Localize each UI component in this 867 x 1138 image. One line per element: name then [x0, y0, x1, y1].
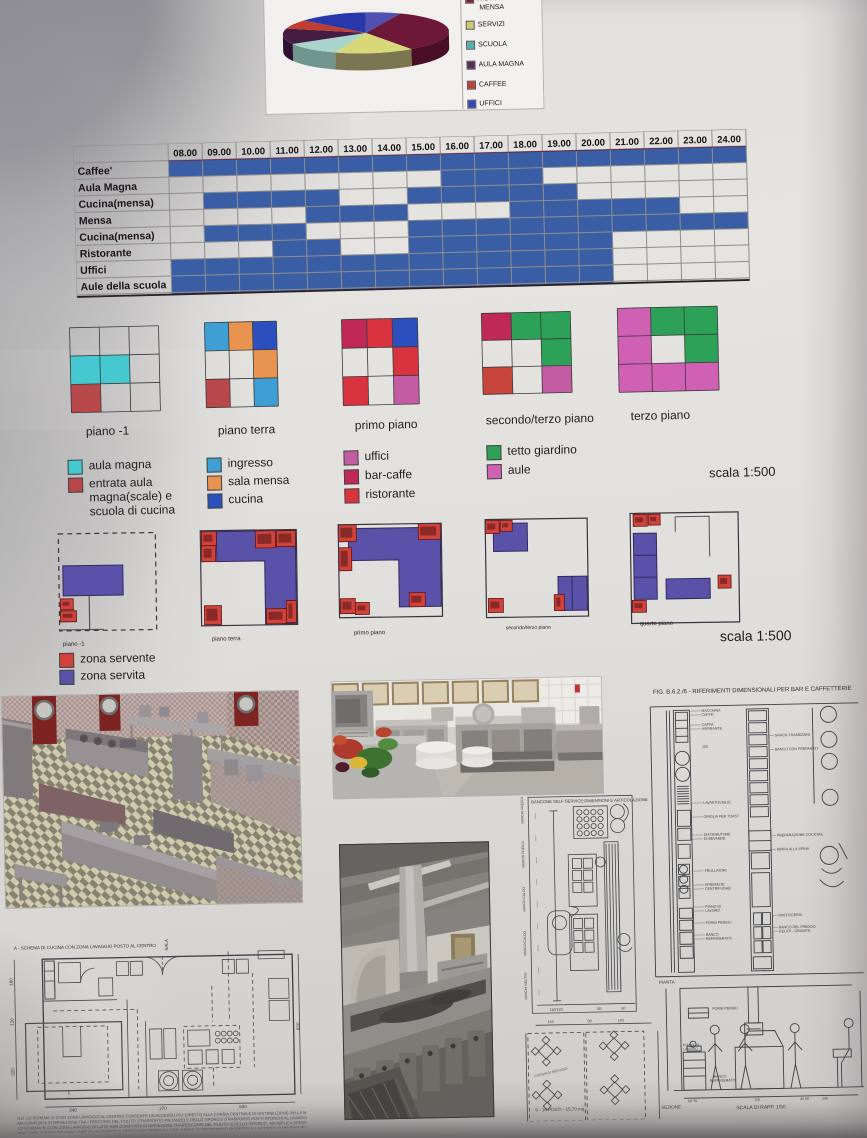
- svg-text:ASPIRANTE: ASPIRANTE: [702, 726, 723, 730]
- svg-text:80: 80: [587, 1019, 591, 1023]
- svg-text:320: 320: [10, 1068, 15, 1076]
- svg-text:143: 143: [548, 1020, 554, 1024]
- svg-text:BANCO CON PREPARATI: BANCO CON PREPARATI: [775, 747, 818, 752]
- svg-text:110/120: 110/120: [549, 1008, 563, 1012]
- svg-text:50: 50: [621, 1006, 625, 1010]
- svg-text:CENTRIFUGHE: CENTRIFUGHE: [705, 886, 732, 891]
- svg-text:105: 105: [702, 745, 708, 749]
- svg-text:PASTICCERIA: PASTICCERIA: [778, 913, 802, 917]
- svg-text:LAVORO: LAVORO: [705, 909, 720, 913]
- svg-text:SNACK-TRAMEZZINI: SNACK-TRAMEZZINI: [775, 733, 810, 738]
- svg-text:110: 110: [754, 1098, 760, 1102]
- svg-text:60 70: 60 70: [688, 1099, 697, 1103]
- svg-text:GRIGLIA PER TOAST: GRIGLIA PER TOAST: [703, 814, 739, 819]
- svg-text:CORSIA DI SERVIZIO: CORSIA DI SERVIZIO: [534, 1067, 568, 1079]
- svg-text:BANCHI FREDDI: BANCHI FREDDI: [521, 841, 526, 868]
- svg-text:GELATI - GRANITE: GELATI - GRANITE: [779, 929, 811, 934]
- svg-text:SEZIONE: SEZIONE: [661, 1104, 681, 1109]
- svg-text:FORNI PENSILI: FORNI PENSILI: [706, 920, 732, 925]
- svg-text:SALA: SALA: [164, 939, 169, 951]
- svg-text:LAVASTOVIGLIE: LAVASTOVIGLIE: [703, 800, 731, 805]
- svg-text:FORNI PENSILI: FORNI PENSILI: [712, 1006, 738, 1011]
- svg-text:BIRRA ALLA SPINA: BIRRA ALLA SPINA: [777, 847, 810, 852]
- svg-text:REFRIGERATO: REFRIGERATO: [710, 1078, 736, 1083]
- svg-text:REFRIGERATO: REFRIGERATO: [706, 936, 732, 941]
- svg-text:143: 143: [617, 1019, 623, 1023]
- svg-text:BANCONE SELF-SERVICE:DIMENSIO: BANCONE SELF-SERVICE:DIMENSIONI E ARTICO…: [531, 797, 648, 804]
- svg-text:PIANTA: PIANTA: [659, 980, 675, 985]
- svg-text:6 - 16 POSTI - 15,70 mq: 6 - 16 POSTI - 15,70 mq: [535, 1106, 585, 1112]
- svg-text:600: 600: [239, 1104, 247, 1109]
- svg-text:A - SCHEMA DI CUCINA CON: A - SCHEMA DI CUCINA CON ZONA LAVAGGIO P…: [14, 943, 156, 951]
- svg-text:270: 270: [159, 1106, 167, 1111]
- svg-text:BANCO CALDO: BANCO CALDO: [523, 930, 528, 955]
- svg-text:85: 85: [597, 1007, 601, 1011]
- svg-text:FIG. B.6.2./6 - RIFERIMENTI DI: FIG. B.6.2./6 - RIFERIMENTI DIMENSIONALI…: [653, 686, 852, 696]
- svg-text:FRULLATORI: FRULLATORI: [705, 868, 727, 872]
- svg-text:45 50: 45 50: [800, 1097, 809, 1101]
- svg-text:CAFFE': CAFFE': [701, 713, 714, 717]
- svg-text:BANCHI NEUTRI: BANCHI NEUTRI: [524, 973, 529, 1000]
- svg-text:340: 340: [69, 1108, 77, 1113]
- svg-text:SCALA DI RAPP. 1/50: SCALA DI RAPP. 1/50: [736, 1104, 786, 1111]
- svg-text:180: 180: [9, 978, 14, 986]
- svg-text:PREPARAZIONE COCKTAIL: PREPARAZIONE COCKTAIL: [777, 832, 824, 837]
- svg-text:DI BEVANDE: DI BEVANDE: [704, 836, 726, 840]
- svg-text:820: 820: [295, 1022, 300, 1030]
- svg-text:BANCO CALDO: BANCO CALDO: [522, 886, 527, 911]
- svg-text:135: 135: [822, 1096, 828, 1100]
- svg-text:LAVORO: LAVORO: [683, 1047, 698, 1051]
- svg-text:BANCHI FREDDI: BANCHI FREDDI: [520, 797, 525, 824]
- svg-text:120: 120: [9, 1018, 14, 1026]
